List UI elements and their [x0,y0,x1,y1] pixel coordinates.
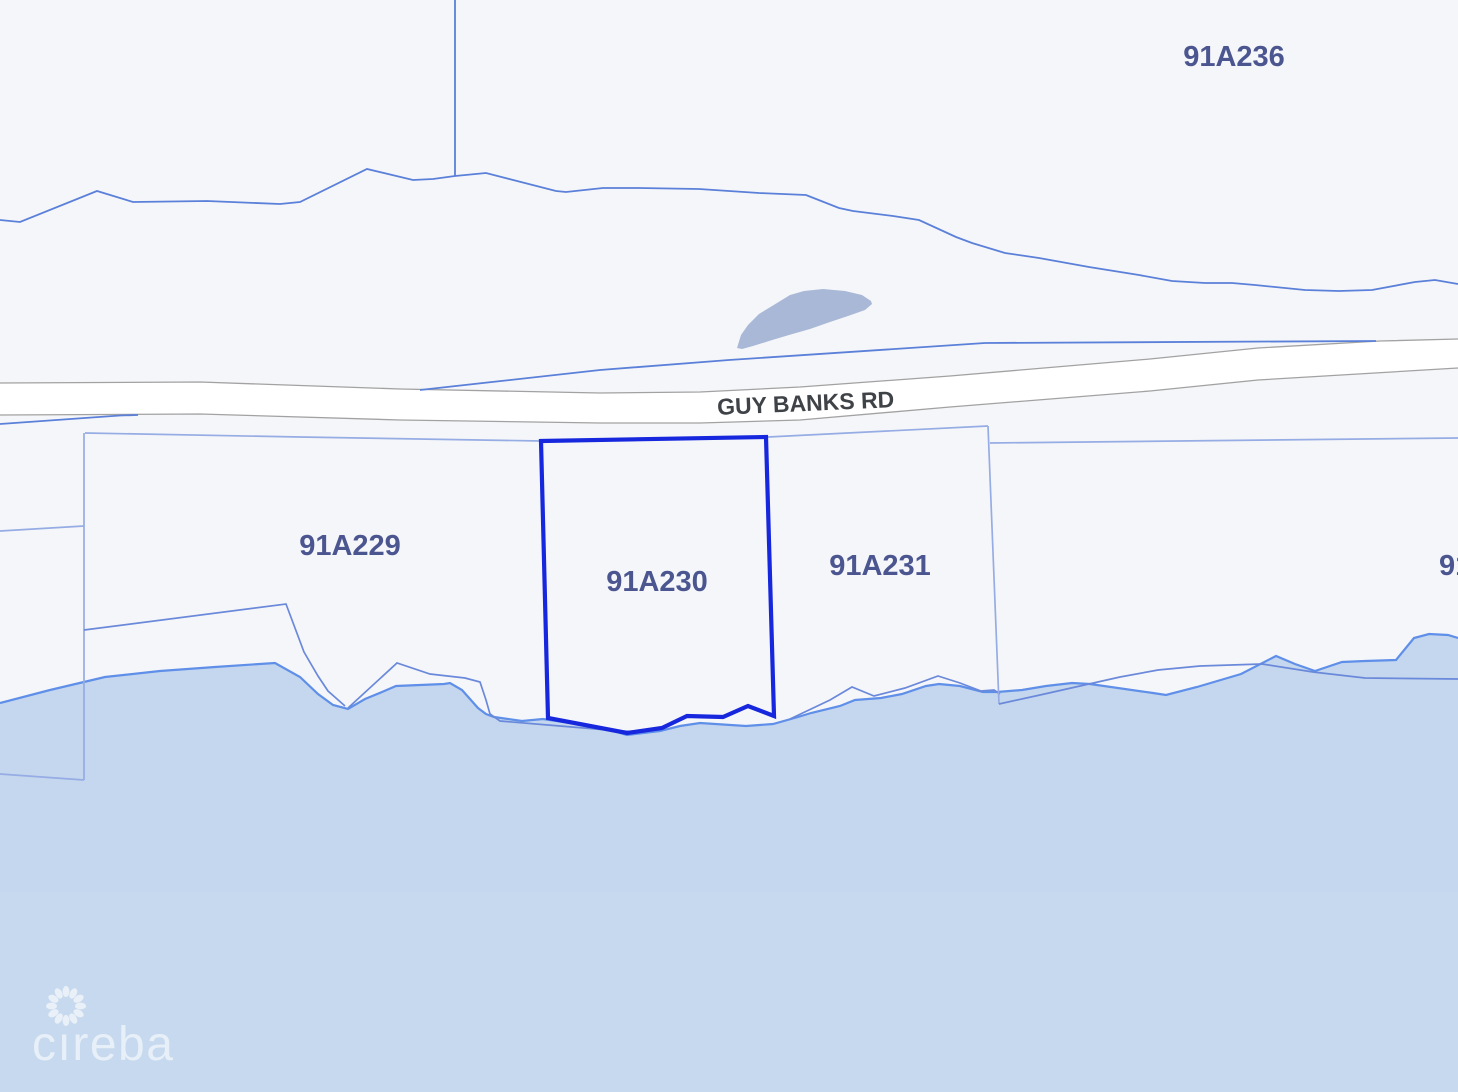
svg-text:91A230: 91A230 [606,566,708,598]
svg-text:91A236: 91A236 [1183,41,1285,73]
svg-text:91A231: 91A231 [829,550,931,582]
svg-text:91A23: 91A23 [1439,550,1458,582]
svg-text:cıreba: cıreba [32,1018,174,1071]
svg-text:91A229: 91A229 [299,530,401,562]
